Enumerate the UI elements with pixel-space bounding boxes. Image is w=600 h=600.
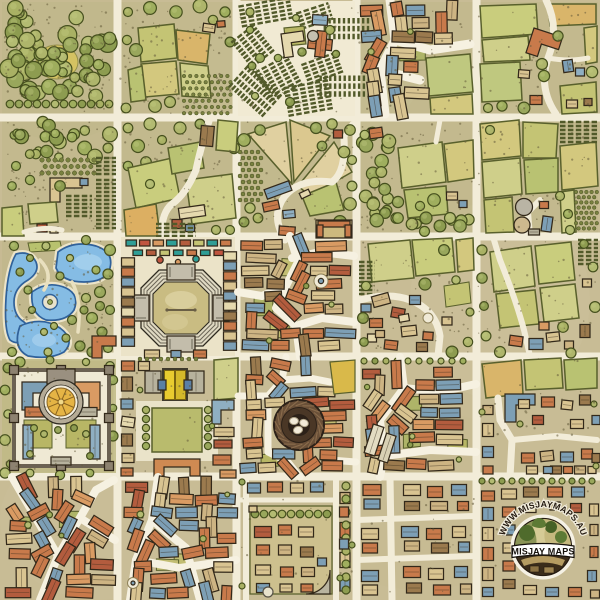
- svg-text:MISJAY MAPS: MISJAY MAPS: [511, 547, 574, 557]
